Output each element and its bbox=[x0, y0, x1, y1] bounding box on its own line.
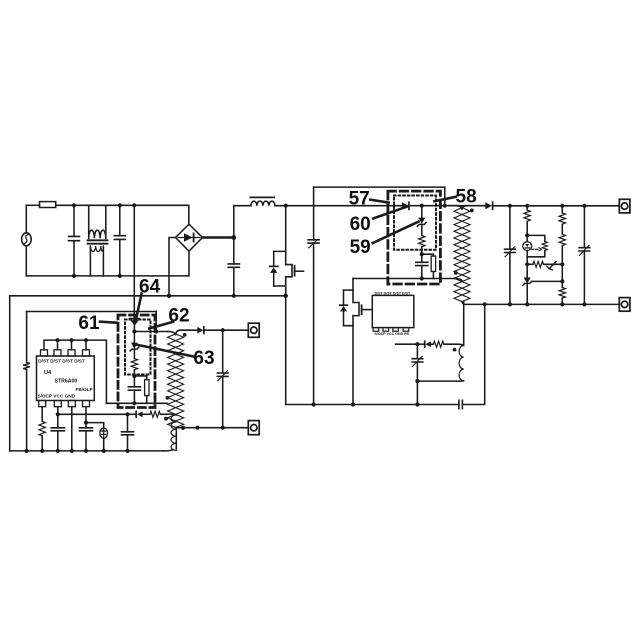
svg-text:D/ST D/ST D/ST D/ST: D/ST D/ST D/ST D/ST bbox=[38, 358, 85, 363]
svg-text:61: 61 bbox=[78, 313, 100, 334]
svg-text:FB/OLP: FB/OLP bbox=[76, 387, 93, 392]
svg-text:D/ST D/ST D/ST D/ST: D/ST D/ST D/ST D/ST bbox=[375, 292, 412, 296]
svg-text:S/OCP VCC GND FB: S/OCP VCC GND FB bbox=[375, 332, 410, 336]
svg-text:59: 59 bbox=[350, 237, 371, 258]
svg-text:S/OCP VCC GND: S/OCP VCC GND bbox=[38, 394, 76, 399]
svg-text:STR6A00: STR6A00 bbox=[55, 379, 78, 385]
svg-text:58: 58 bbox=[456, 186, 477, 207]
svg-text:60: 60 bbox=[350, 214, 371, 235]
svg-text:57: 57 bbox=[349, 188, 370, 209]
svg-text:63: 63 bbox=[193, 348, 214, 369]
svg-text:U4: U4 bbox=[44, 370, 52, 376]
